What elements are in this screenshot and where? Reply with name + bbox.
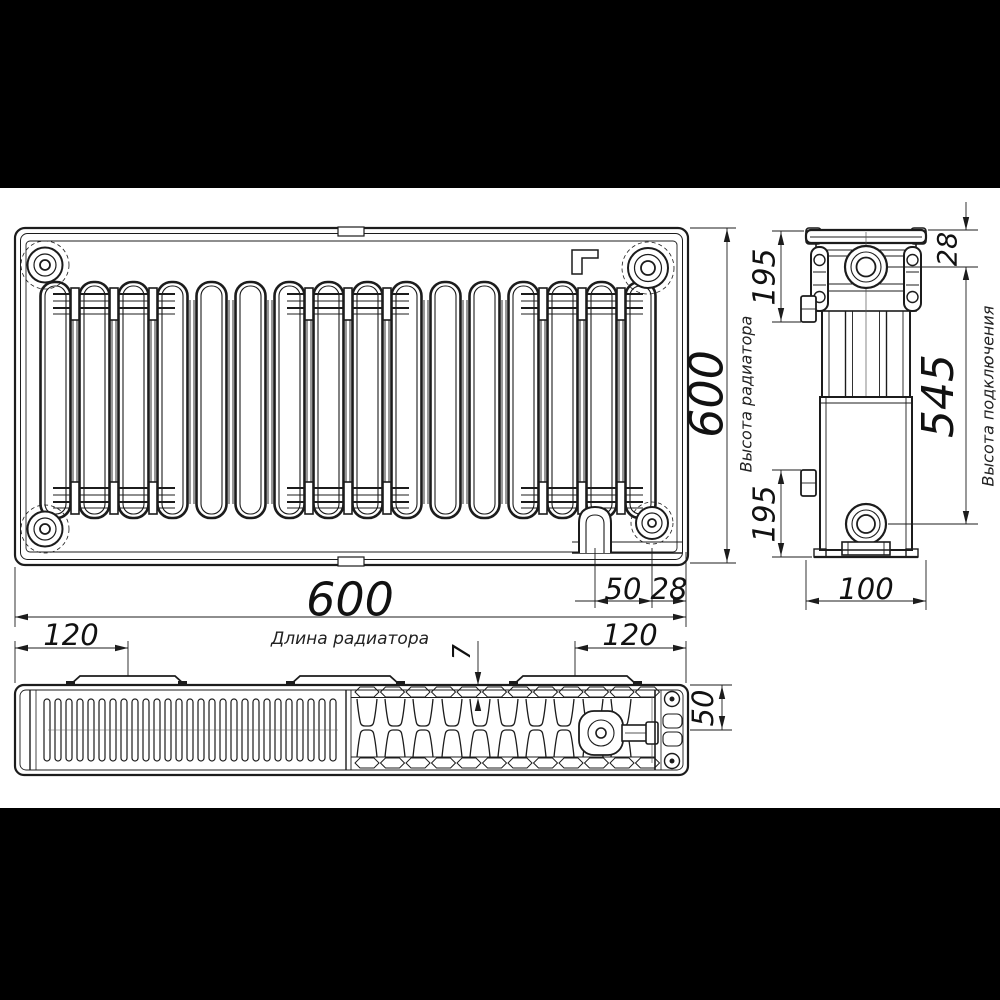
dim-panel-thickness-value: 7 — [447, 644, 476, 660]
dim-bracket-top-value: 195 — [748, 248, 783, 305]
dim-top-port-offset-value: 28 — [933, 232, 964, 266]
dim-connection-height-value: 545 — [913, 354, 964, 438]
dim-bracket-bottom-value: 195 — [748, 485, 783, 542]
letterbox-top — [0, 0, 1000, 188]
radiator-technical-drawing: 600 Высота радиатора 600 Длина радиатора… — [0, 0, 1000, 1000]
dim-length-value: 600 — [306, 573, 394, 627]
dim-height-label: Высота радиатора — [737, 316, 756, 473]
dim-depth-value: 100 — [838, 572, 893, 606]
dim-height-value: 600 — [680, 350, 734, 438]
dim-length-label: Длина радиатора — [270, 629, 429, 649]
side-top-port — [845, 246, 887, 288]
wall-tab-upper — [801, 296, 816, 322]
side-bracket-right — [904, 247, 921, 311]
dim-edge-offset-value: 28 — [651, 572, 688, 606]
dim-pad-right-value: 120 — [602, 618, 657, 652]
side-bottom-port — [842, 504, 890, 555]
dim-pad-left-value: 120 — [43, 618, 98, 652]
bottom-clip — [338, 557, 364, 566]
dim-drain-offset-value: 50 — [605, 572, 642, 606]
dim-connection-height-label: Высота подключения — [979, 305, 998, 486]
top-clip — [338, 227, 364, 236]
dim-half-depth-value: 50 — [686, 690, 720, 727]
drawing-svg: 600 Высота радиатора 600 Длина радиатора… — [0, 0, 1000, 1000]
wall-tab-lower — [801, 470, 816, 496]
letterbox-bottom — [0, 808, 1000, 1000]
